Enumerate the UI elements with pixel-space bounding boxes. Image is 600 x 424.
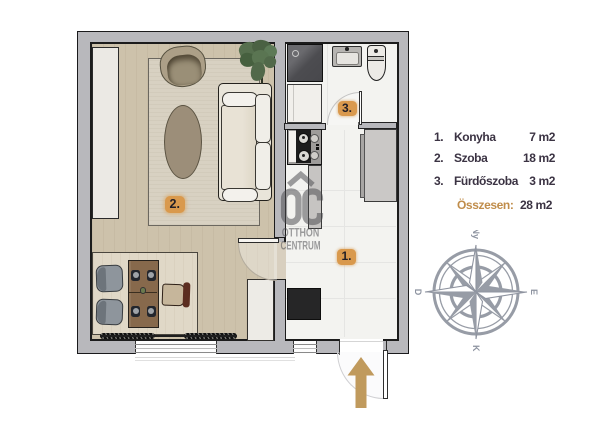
svg-text:K: K	[471, 345, 481, 352]
svg-text:D: D	[414, 289, 423, 296]
svg-text:É: É	[529, 289, 538, 295]
svg-text:OTTHON: OTTHON	[282, 226, 320, 240]
svg-text:Ny: Ny	[471, 230, 481, 239]
svg-text:CENTRUM: CENTRUM	[281, 239, 321, 253]
